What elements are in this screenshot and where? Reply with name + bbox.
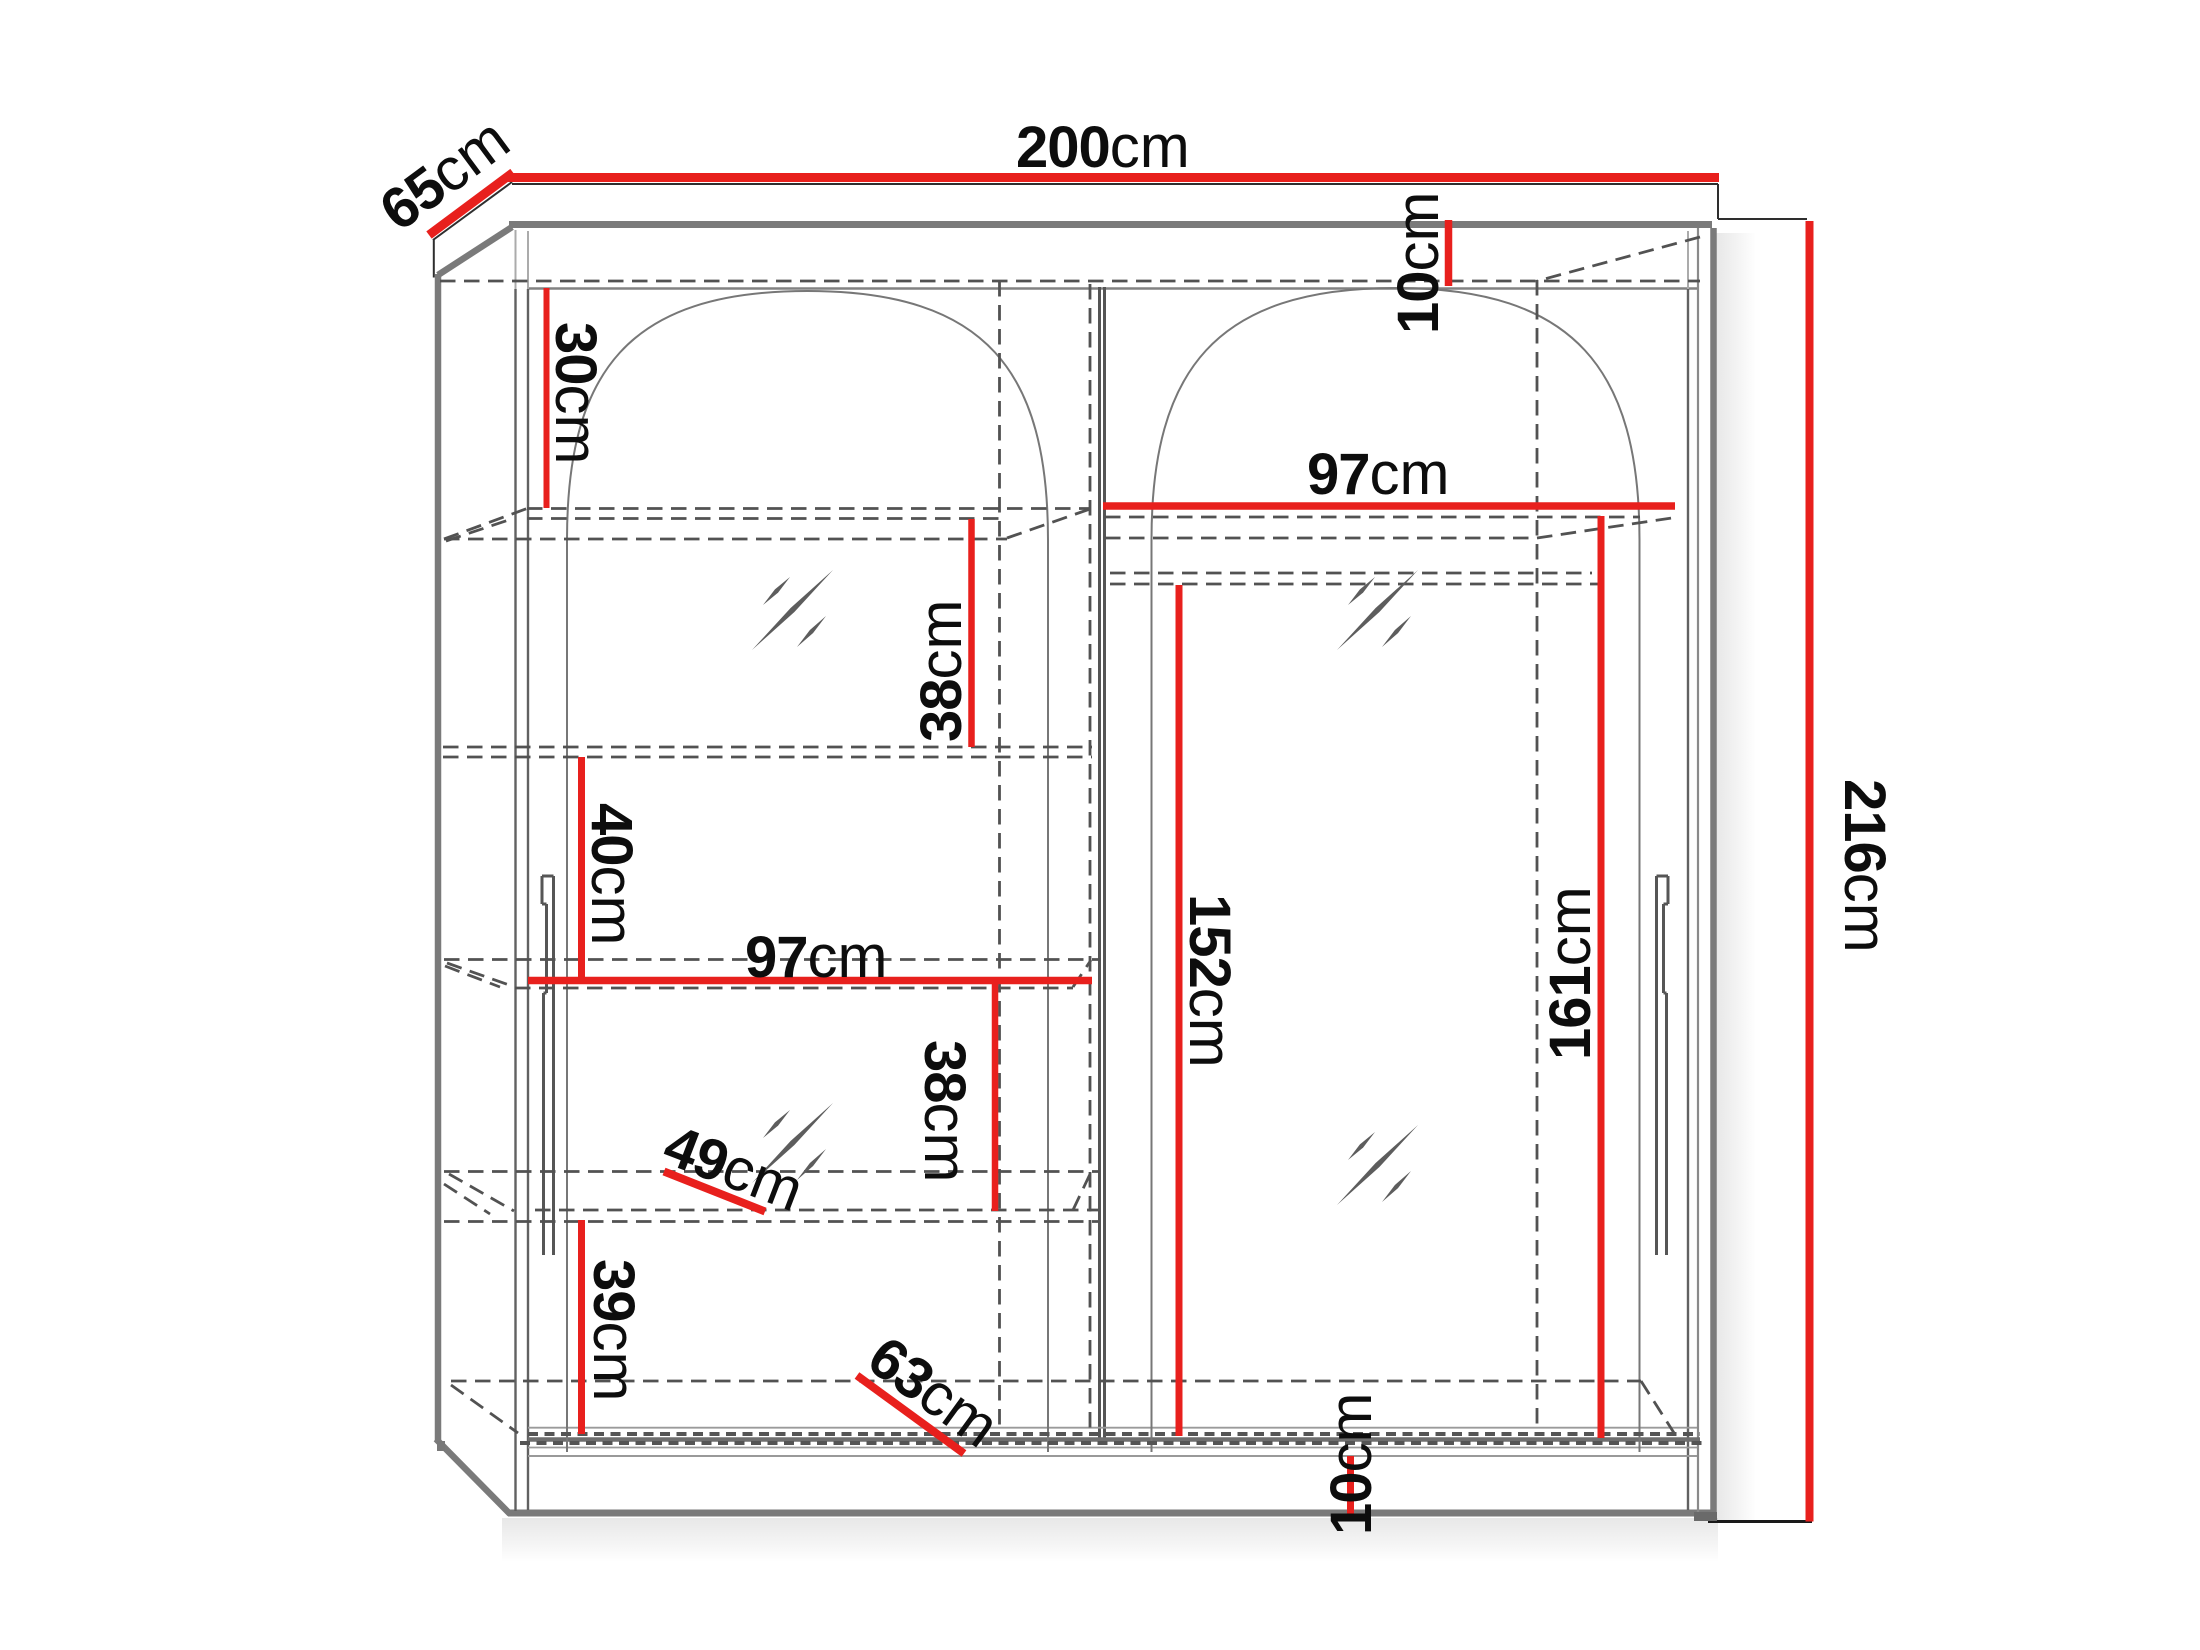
svg-text:39cm: 39cm [581, 1259, 648, 1402]
svg-text:10cm: 10cm [1384, 192, 1451, 335]
svg-text:40cm: 40cm [579, 803, 646, 946]
svg-text:200cm: 200cm [1016, 113, 1190, 180]
svg-text:97cm: 97cm [745, 923, 888, 990]
svg-text:216cm: 216cm [1832, 779, 1899, 953]
svg-text:152cm: 152cm [1177, 894, 1244, 1068]
svg-text:97cm: 97cm [1307, 440, 1450, 507]
svg-text:30cm: 30cm [543, 322, 610, 465]
svg-text:38cm: 38cm [907, 600, 974, 743]
svg-text:10cm: 10cm [1317, 1393, 1384, 1536]
svg-text:38cm: 38cm [912, 1040, 979, 1183]
svg-text:161cm: 161cm [1536, 886, 1603, 1060]
